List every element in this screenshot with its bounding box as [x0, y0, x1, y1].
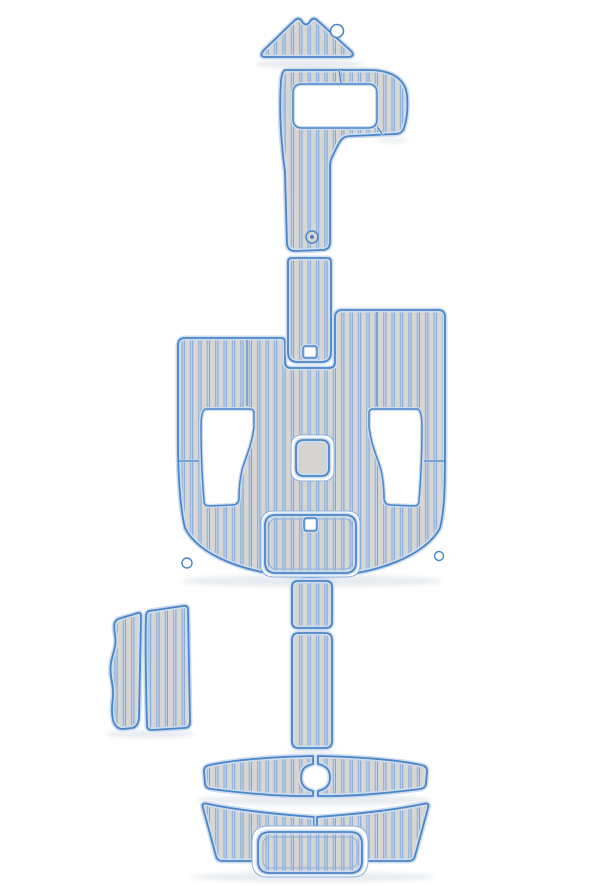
- side-step-pad-right-shape: [146, 606, 190, 730]
- walkway-strip-middle-shape: [292, 581, 332, 628]
- bow-ring-pad: [280, 70, 407, 251]
- aft-hatch-pad: [265, 515, 356, 573]
- walkway-strip-lower: [292, 633, 332, 748]
- center-console-pad-shape: [296, 440, 329, 476]
- pad-shadow: [376, 137, 408, 143]
- transom-step-pad-shape: [258, 832, 362, 873]
- bow-triangle-pad: [261, 19, 352, 57]
- cutout: [303, 346, 317, 358]
- walkway-strip-upper: [288, 258, 331, 362]
- corner-notch: [182, 558, 192, 568]
- walkway-strip-middle: [292, 581, 332, 628]
- pad-shadow: [255, 60, 363, 69]
- side-step-pad-left: [111, 613, 141, 729]
- decking-kit-svg: [0, 0, 600, 886]
- walkway-strip-lower-shape: [292, 633, 332, 748]
- transom-step-pad: [258, 832, 362, 873]
- side-step-pad-right: [146, 606, 190, 730]
- deck-fitting-center: [310, 235, 314, 239]
- center-console-pad: [296, 440, 329, 476]
- cutout: [304, 518, 317, 531]
- drain-hole: [331, 25, 344, 38]
- swim-platform-pad-right: [318, 756, 427, 796]
- cutout: [293, 84, 377, 128]
- swim-platform-pad-left: [204, 756, 313, 796]
- corner-notch: [435, 552, 444, 561]
- product-image: [0, 0, 600, 886]
